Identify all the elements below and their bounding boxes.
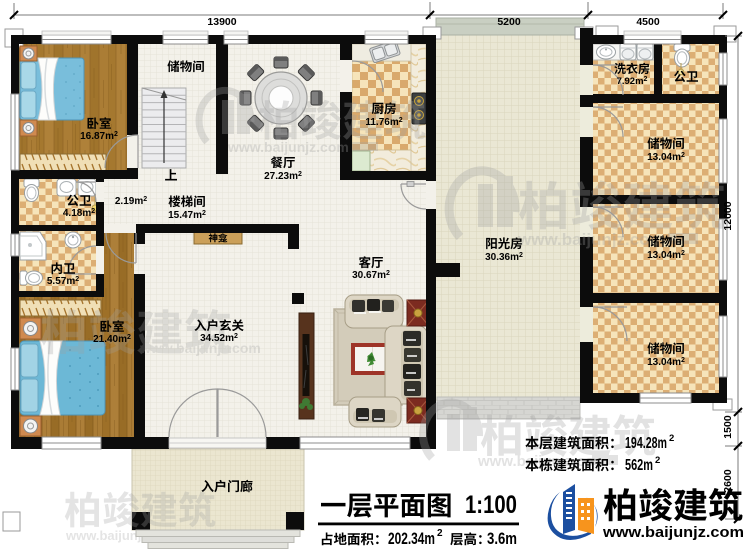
svg-text:34.52m2: 34.52m2 [200,333,238,344]
svg-text:13.04m2: 13.04m2 [647,250,685,261]
svg-text:27.23m2: 27.23m2 [264,171,302,182]
svg-text:13.04m2: 13.04m2 [647,152,685,163]
svg-text:3.6m: 3.6m [487,529,517,548]
svg-text:12000: 12000 [722,201,734,230]
svg-text:202.34m: 202.34m [388,529,435,548]
svg-text:11.76m2: 11.76m2 [365,117,402,128]
svg-text:30.36m2: 30.36m2 [485,252,523,263]
svg-text:1500: 1500 [722,415,734,439]
svg-text:7.92m2: 7.92m2 [617,76,648,87]
svg-text:15.47m2: 15.47m2 [168,210,206,221]
svg-text:2: 2 [669,433,674,444]
svg-text:www.baijunjz.com: www.baijunjz.com [602,524,744,541]
svg-text:194.28m: 194.28m [625,435,667,452]
svg-text:5200: 5200 [497,16,521,28]
svg-text:30.67m2: 30.67m2 [352,270,390,281]
svg-text:21.40m2: 21.40m2 [93,334,131,345]
svg-text:1:100: 1:100 [465,491,517,519]
svg-text:13.04m2: 13.04m2 [647,357,685,368]
svg-text:4.18m2: 4.18m2 [63,208,95,219]
svg-text:4500: 4500 [636,16,660,28]
svg-text:2: 2 [437,528,443,539]
svg-text:2: 2 [655,455,660,466]
svg-text:562m: 562m [625,457,653,474]
svg-text:13900: 13900 [207,16,236,28]
svg-text:www.baijunjz.com: www.baijunjz.com [227,139,349,155]
svg-text:5.57m2: 5.57m2 [47,276,79,287]
svg-text:2.19m2: 2.19m2 [115,196,147,207]
svg-text:www.baijunjz.com: www.baijunjz.com [517,230,665,249]
svg-text:16.87m2: 16.87m2 [80,131,118,142]
